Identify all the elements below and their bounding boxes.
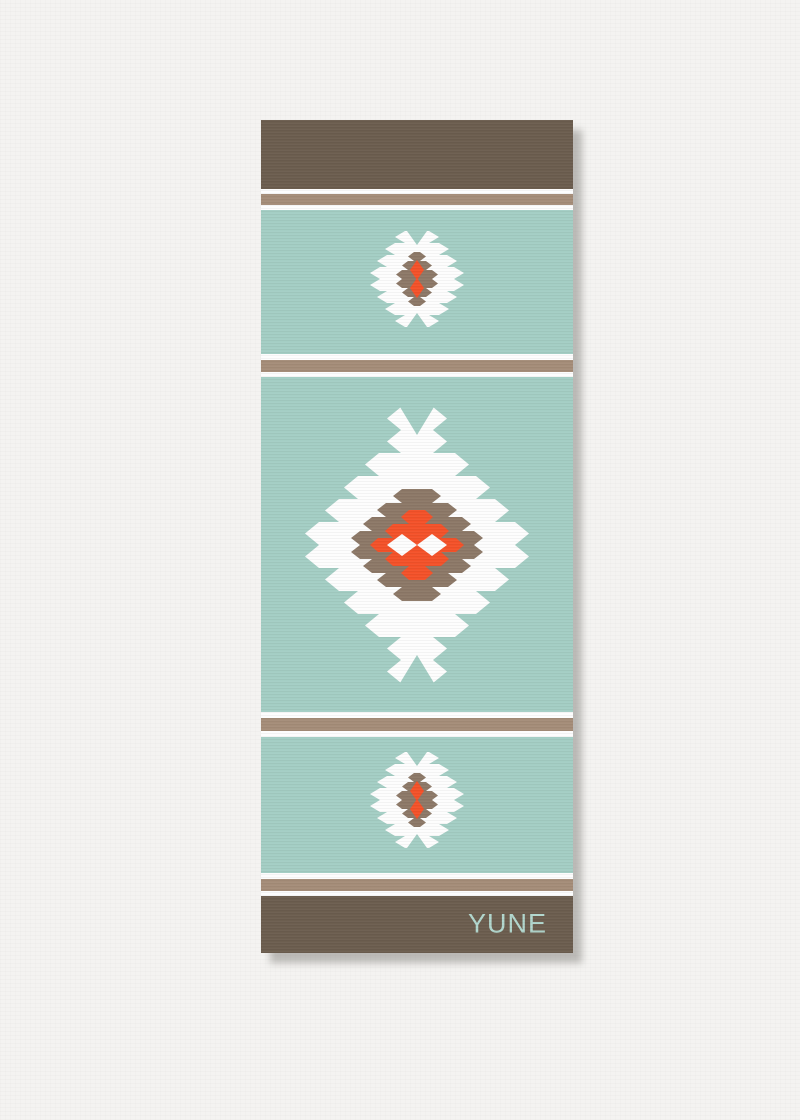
mat-band-brown-bottom: YUNE [261, 896, 573, 953]
brand-logo: YUNE [468, 908, 547, 939]
mat-stripe-tan [261, 194, 573, 205]
aztec-diamond-motif-small-bottom [370, 752, 464, 848]
mat-panel-teal-bottom [261, 737, 573, 873]
mat-stripe-tan [261, 879, 573, 891]
mat-stripe-tan [261, 360, 573, 372]
mat-stripe-tan [261, 718, 573, 731]
mat-panel-teal-top [261, 210, 573, 354]
product-photo-background: { "brand": { "label": "YUNE" }, "colors"… [0, 0, 800, 1120]
mat-panel-teal-center [261, 377, 573, 712]
yoga-mat: YUNE [261, 120, 573, 953]
mat-band-brown-top [261, 120, 573, 189]
aztec-diamond-motif-small-top [370, 231, 464, 327]
aztec-diamond-motif-large-center [305, 407, 529, 683]
